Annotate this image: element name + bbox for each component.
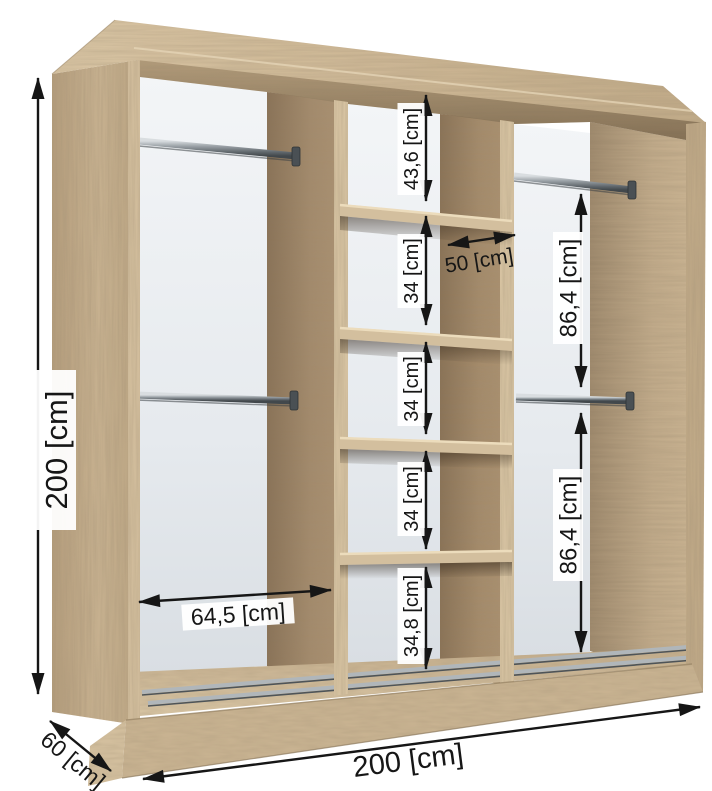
rail-bracket — [626, 392, 634, 410]
dim-label-width: 200 [cm] — [351, 738, 465, 784]
wardrobe-illustration: 200 [cm] 200 [cm] 60 [cm] 64,5 [cm] — [0, 0, 712, 791]
divider-right-front-edge — [500, 120, 514, 686]
dim-label-right-lower: 86,4 [cm] — [556, 476, 583, 575]
divider-right-shading — [440, 114, 500, 686]
dim-label-gap-3: 34 [cm] — [401, 466, 423, 532]
left-panel-front-edge — [128, 60, 140, 725]
divider-left-front-edge — [334, 100, 348, 696]
dim-label-right-upper: 86,4 [cm] — [556, 239, 583, 338]
rail-bracket — [628, 181, 636, 199]
dim-gap-bottom: 34,8 [cm] — [398, 567, 427, 669]
dim-gap-top: 43,6 [cm] — [398, 95, 427, 201]
dim-label-height: 200 [cm] — [39, 391, 74, 510]
rail-bracket — [290, 391, 298, 410]
dim-label-gap-top: 43,6 [cm] — [401, 108, 423, 190]
dim-label-gap-2: 34 [cm] — [401, 356, 423, 422]
back-panel-left — [132, 76, 267, 674]
dim-gap-2: 34 [cm] — [398, 342, 427, 434]
wardrobe-dimension-diagram: 200 [cm] 200 [cm] 60 [cm] 64,5 [cm] — [0, 0, 712, 791]
dim-label-gap-1: 34 [cm] — [401, 238, 423, 304]
hanging-rail-right-middle — [516, 397, 630, 401]
dim-gap-3: 34 [cm] — [398, 451, 427, 549]
rail-bracket — [292, 147, 300, 166]
dim-label-gap-bottom: 34,8 [cm] — [401, 575, 423, 657]
right-wall-front-edge — [686, 122, 706, 692]
